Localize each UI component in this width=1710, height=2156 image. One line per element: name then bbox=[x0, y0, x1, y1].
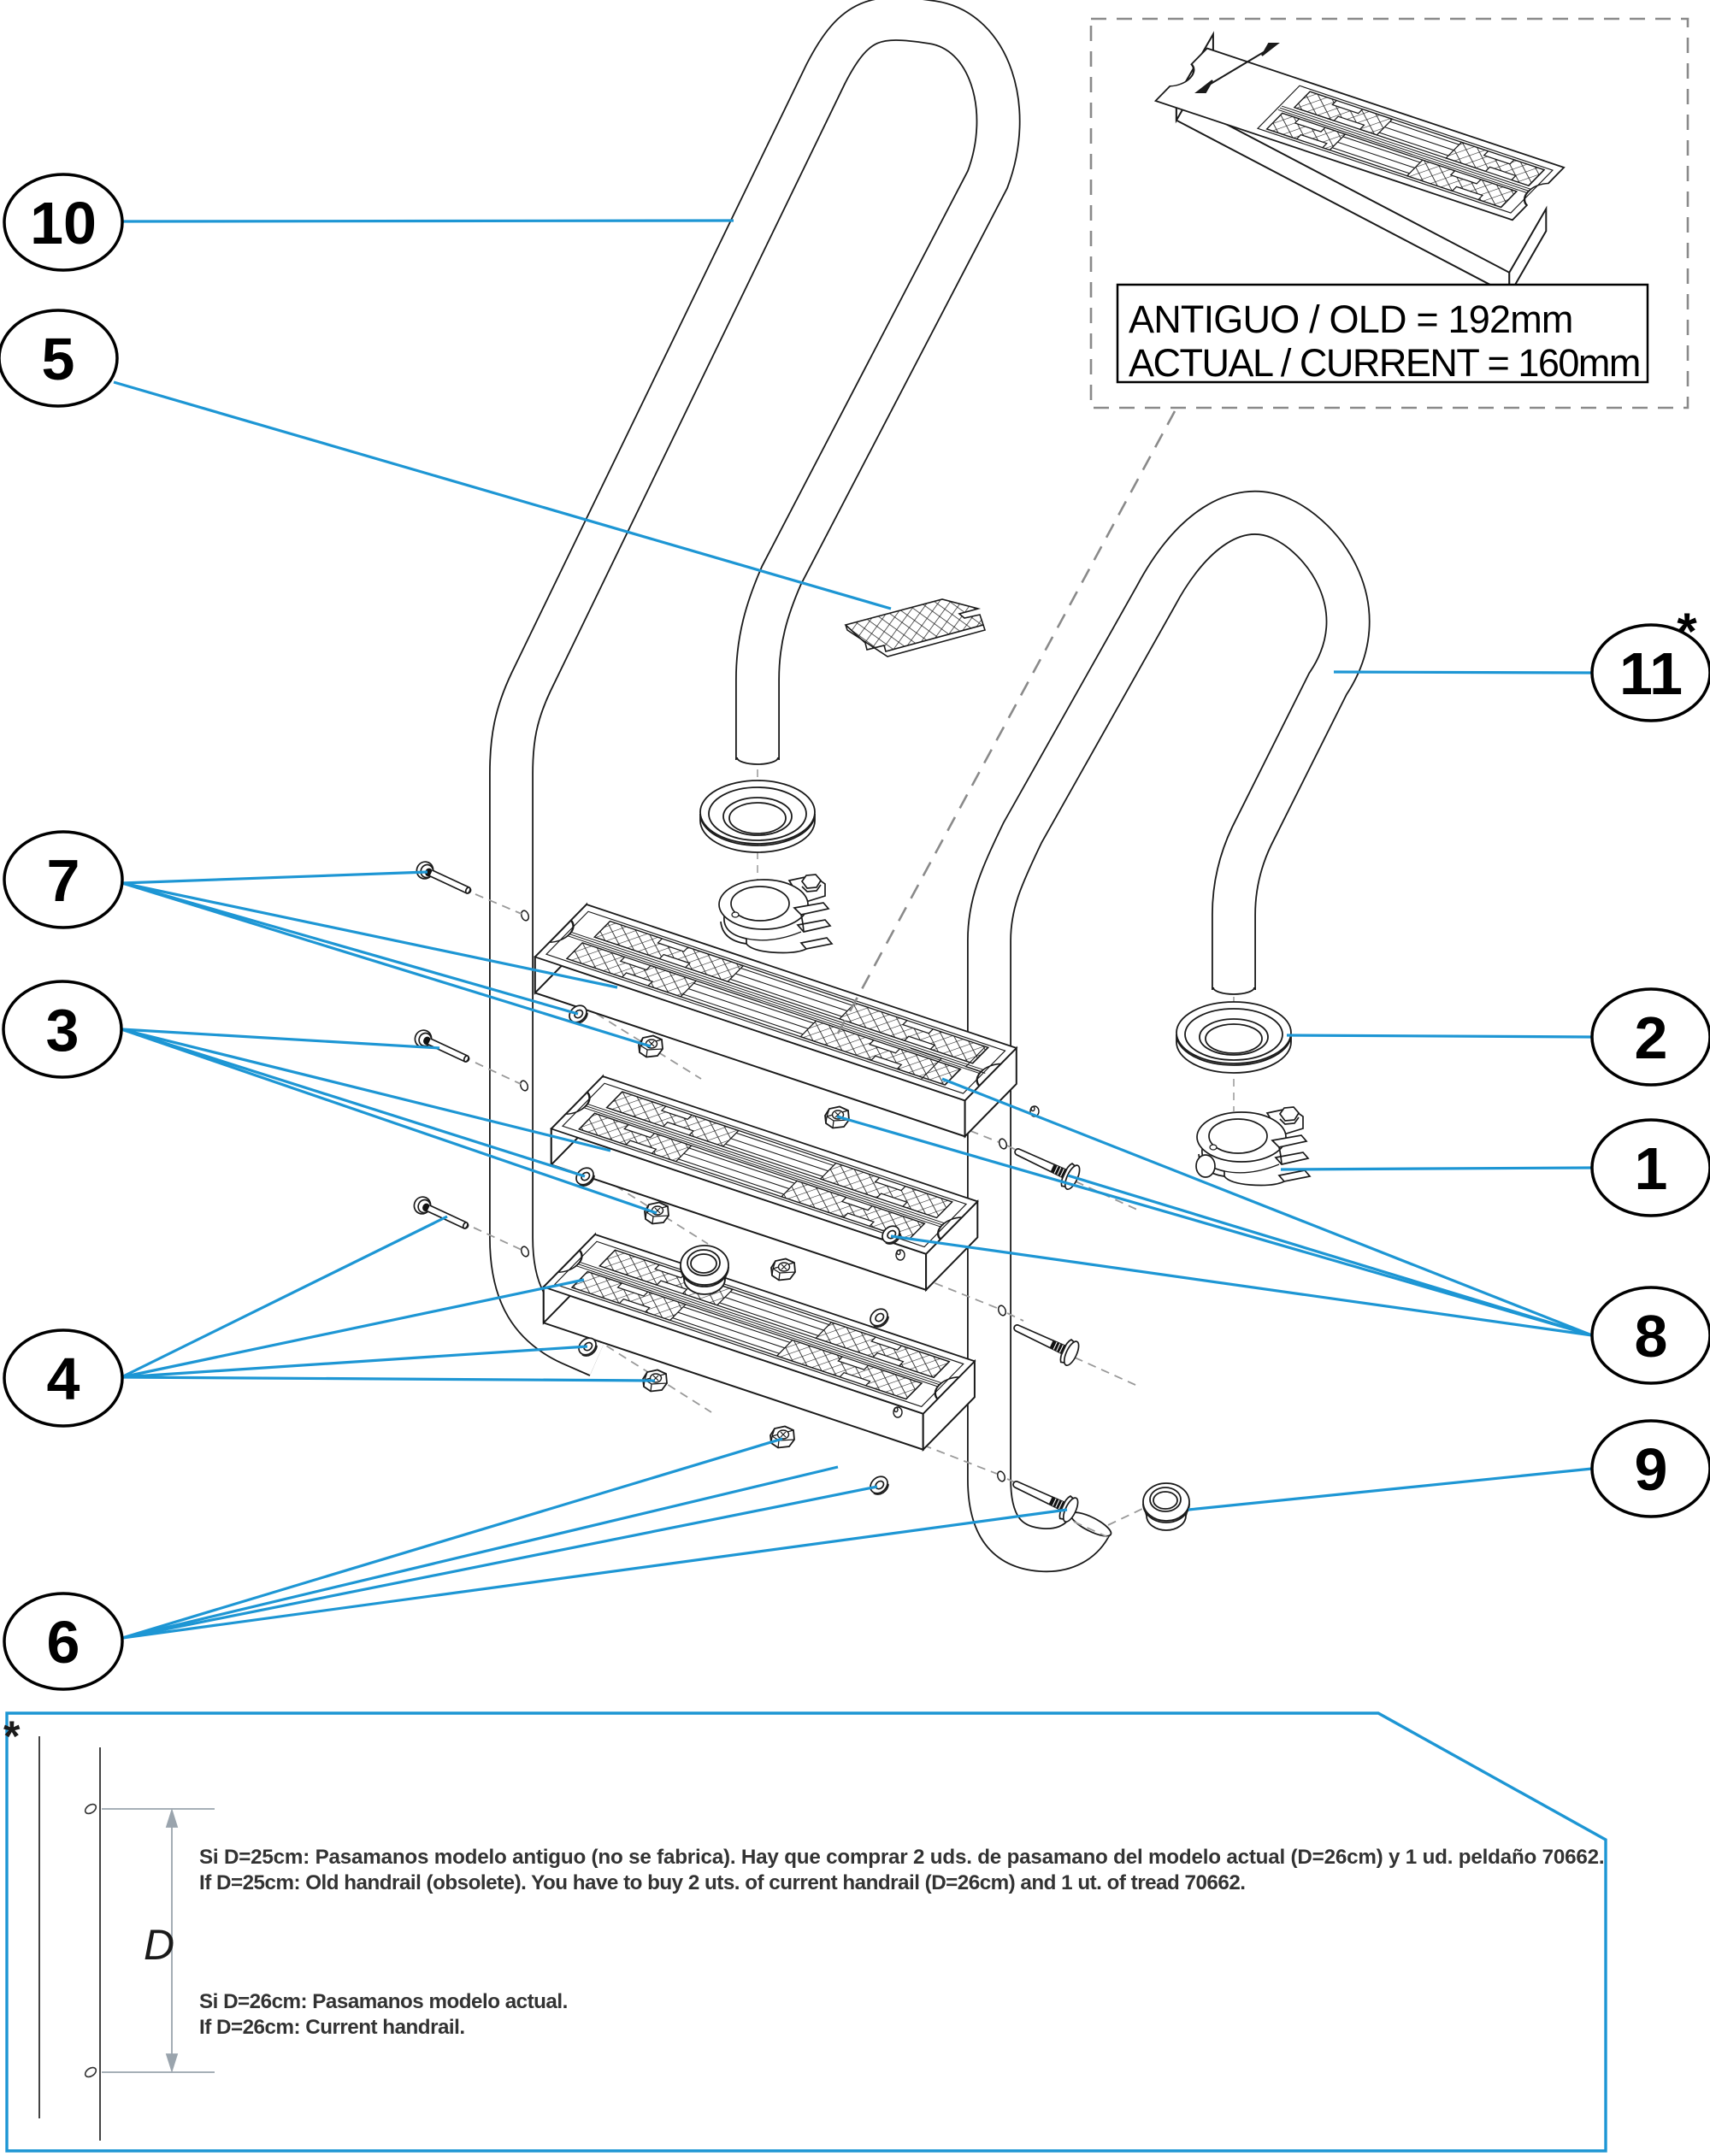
svg-text:Si D=25cm: Pasamanos modelo an: Si D=25cm: Pasamanos modelo antiguo (no … bbox=[199, 1846, 1604, 1869]
svg-text:If D=26cm: Current handrail.: If D=26cm: Current handrail. bbox=[199, 2016, 465, 2039]
svg-text:*: * bbox=[1677, 603, 1697, 660]
svg-text:7: 7 bbox=[47, 847, 80, 914]
svg-text:6: 6 bbox=[47, 1609, 80, 1676]
svg-text:2: 2 bbox=[1635, 1004, 1668, 1071]
svg-text:Si D=26cm: Pasamanos modelo ac: Si D=26cm: Pasamanos modelo actual. bbox=[199, 1990, 568, 2013]
svg-text:If D=25cm: Old handrail (obsol: If D=25cm: Old handrail (obsolete). You … bbox=[199, 1871, 1246, 1894]
svg-text:10: 10 bbox=[30, 190, 97, 256]
svg-text:1: 1 bbox=[1635, 1135, 1668, 1202]
svg-text:D: D bbox=[144, 1921, 174, 1969]
svg-text:8: 8 bbox=[1635, 1303, 1668, 1370]
svg-text:ANTIGUO / OLD = 192mm: ANTIGUO / OLD = 192mm bbox=[1129, 297, 1573, 341]
svg-text:5: 5 bbox=[42, 326, 75, 392]
svg-text:*: * bbox=[3, 1712, 21, 1760]
svg-text:4: 4 bbox=[47, 1346, 80, 1412]
svg-text:3: 3 bbox=[46, 997, 80, 1063]
svg-text:ACTUAL / CURRENT = 160mm: ACTUAL / CURRENT = 160mm bbox=[1129, 341, 1640, 385]
svg-text:11: 11 bbox=[1619, 640, 1683, 707]
svg-text:9: 9 bbox=[1635, 1436, 1668, 1503]
